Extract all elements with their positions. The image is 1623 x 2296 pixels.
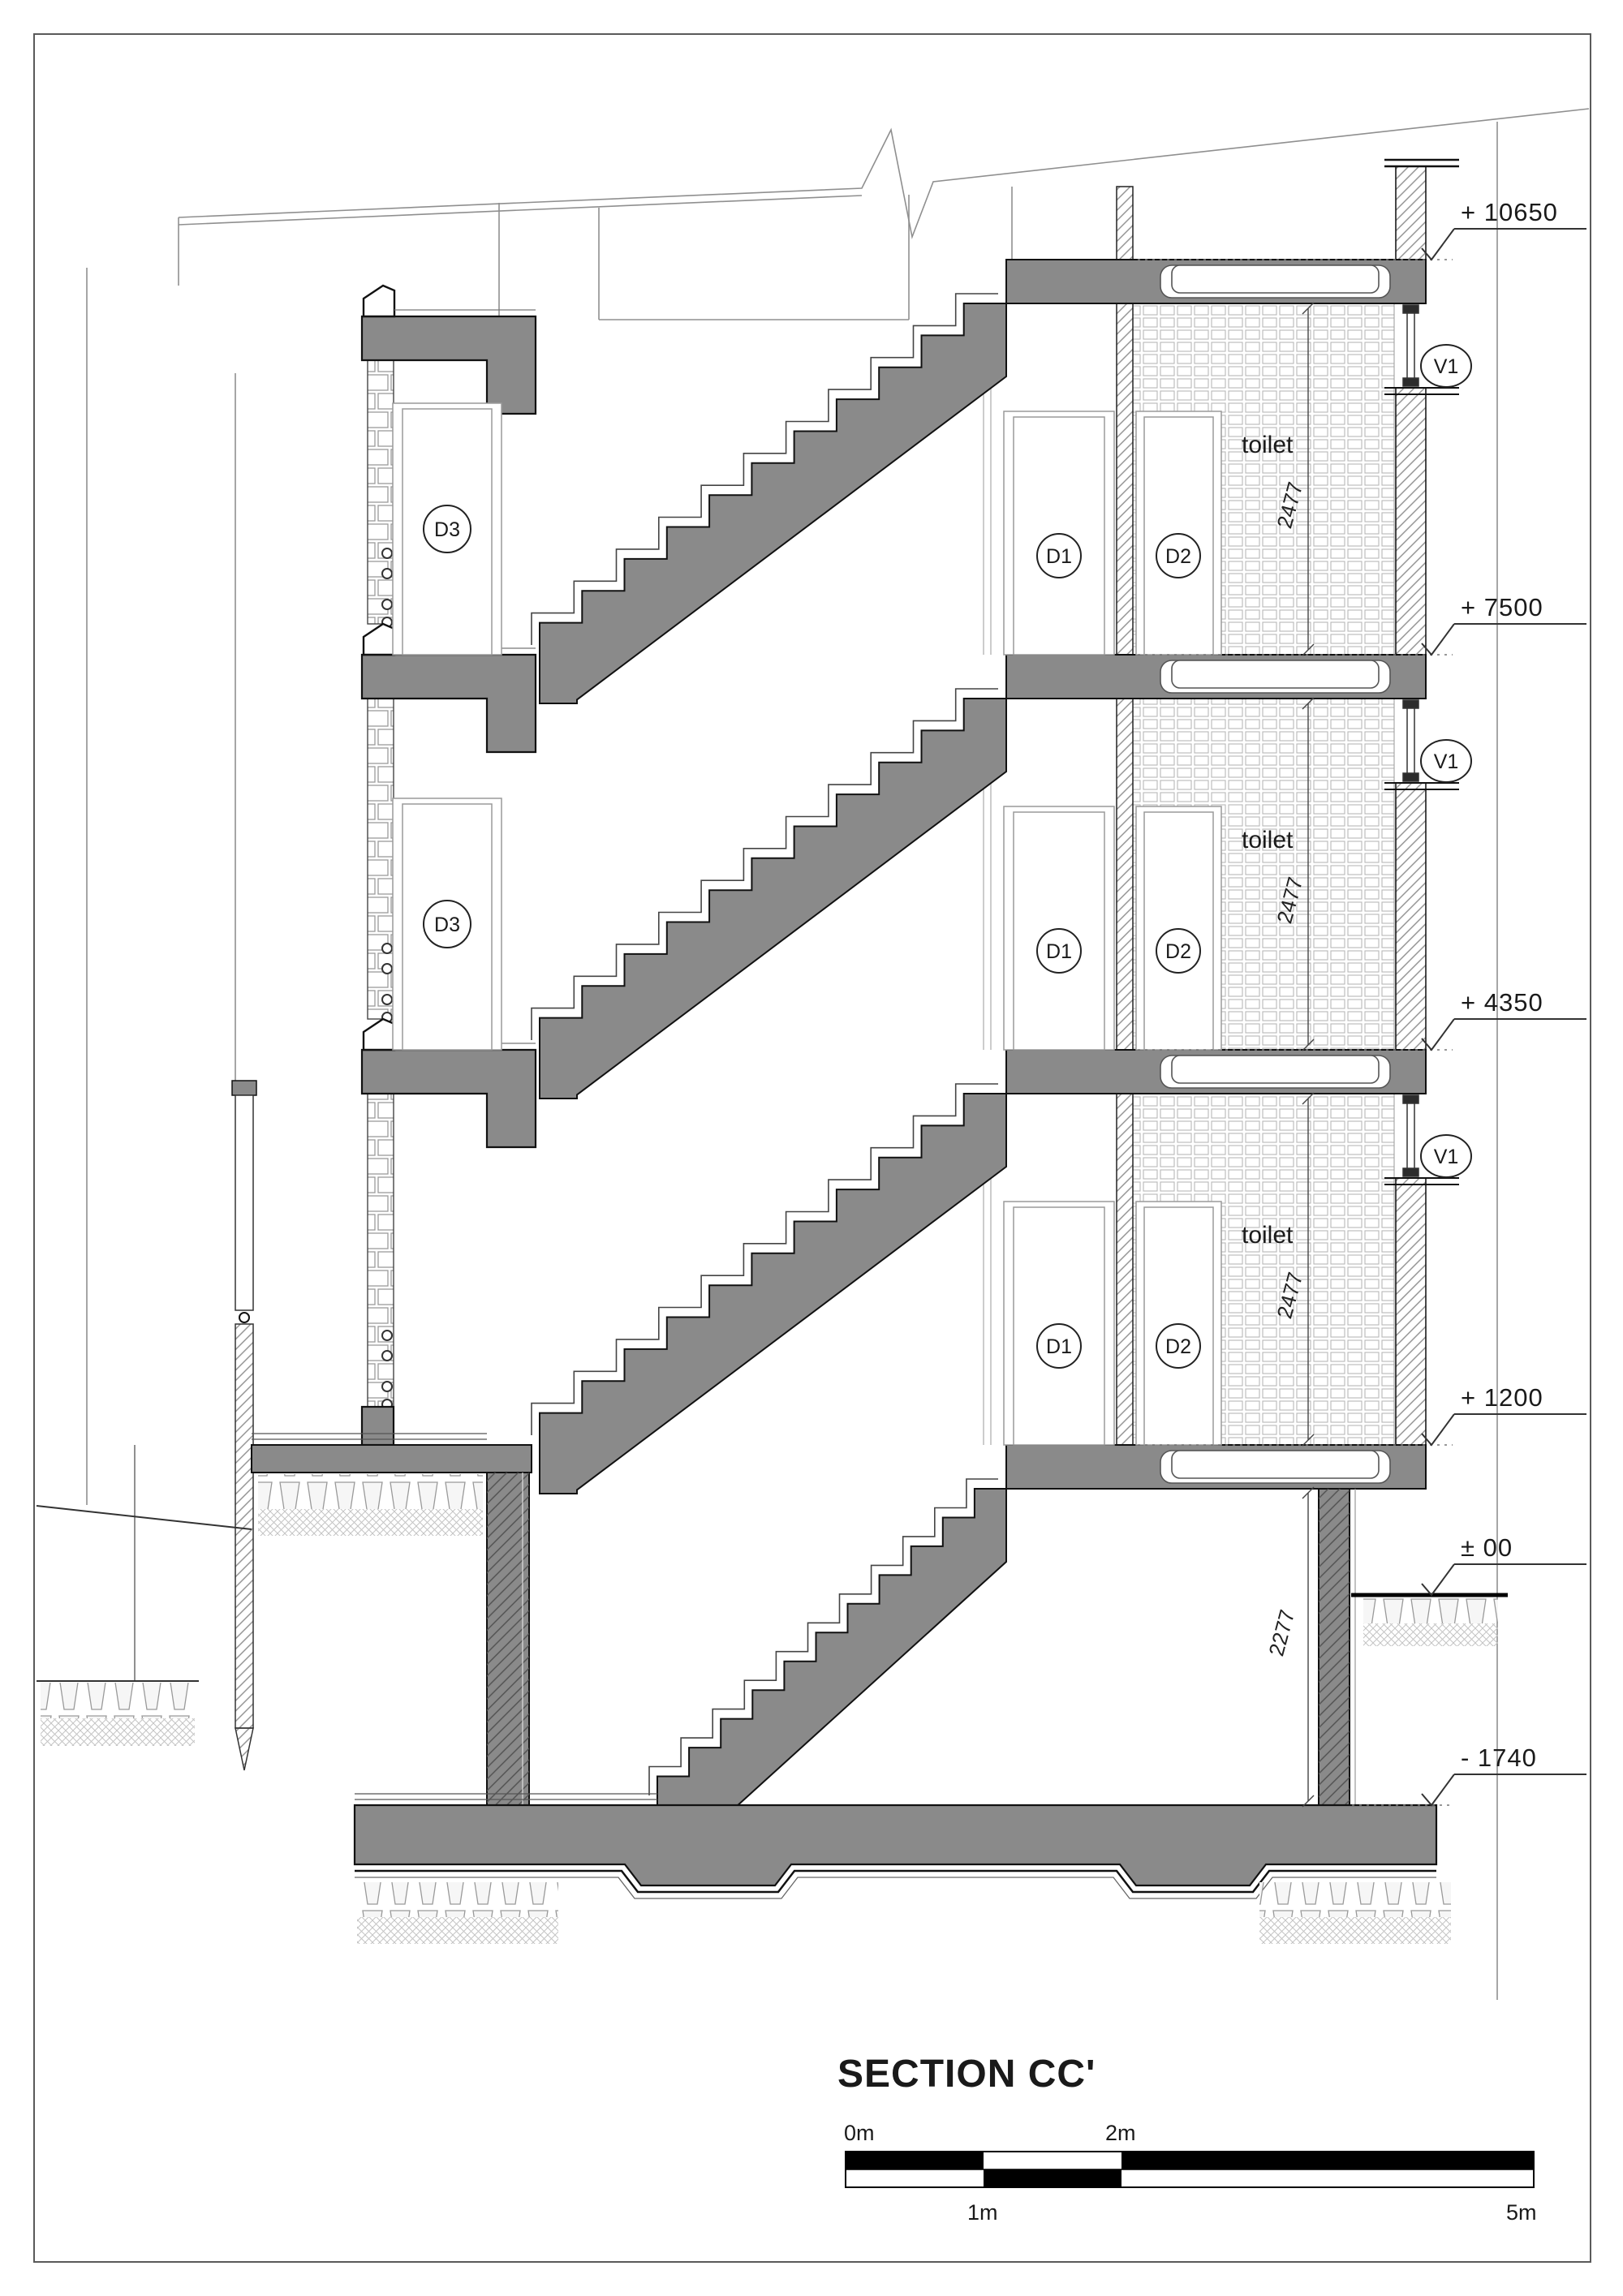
svg-text:D1: D1 <box>1046 545 1072 568</box>
svg-text:D2: D2 <box>1165 545 1191 568</box>
vent-tag-labels: V1 V1 V1 <box>1434 355 1459 1168</box>
level-4350: + 4350 <box>1461 988 1543 1017</box>
scale-bar: 0m 2m 1m 5m <box>844 2121 1537 2225</box>
stair-flights <box>532 294 1006 1854</box>
stair-flight <box>540 303 1006 703</box>
vent-window-2 <box>1403 700 1419 781</box>
svg-text:V1: V1 <box>1434 355 1459 378</box>
scale-2m: 2m <box>1105 2121 1136 2145</box>
drawing-title: SECTION CC' <box>837 2053 1096 2096</box>
svg-text:D2: D2 <box>1165 1335 1191 1358</box>
vent-window-3 <box>1403 1095 1419 1176</box>
stair-flight <box>657 1489 1006 1854</box>
svg-text:toilet: toilet <box>1242 432 1294 458</box>
right-exterior-wall <box>1384 160 1459 1445</box>
svg-text:toilet: toilet <box>1242 827 1294 853</box>
svg-text:2277: 2277 <box>1264 1607 1299 1659</box>
partition-lines <box>984 303 991 1445</box>
level-labels: + 10650 + 7500 + 4350 + 1200 ± 00 - 1740 <box>1461 198 1558 1772</box>
scale-0m: 0m <box>844 2121 875 2145</box>
lower-left-structure <box>37 1081 532 1805</box>
brick-wall <box>368 360 394 1407</box>
section-drawing: + 10650 + 7500 + 4350 + 1200 ± 00 - 1740… <box>0 0 1623 2296</box>
svg-text:V1: V1 <box>1434 750 1459 773</box>
level-7500: + 7500 <box>1461 593 1543 621</box>
level-0: ± 00 <box>1461 1533 1513 1562</box>
parapet-cap <box>1384 160 1459 166</box>
svg-text:D3: D3 <box>434 914 460 936</box>
hardcore-left-entry <box>258 1474 483 1509</box>
stair-flight <box>540 1094 1006 1494</box>
stairwell-wall <box>1117 187 1133 1445</box>
level-10650: + 10650 <box>1461 198 1558 226</box>
level-minus-1740: - 1740 <box>1461 1743 1537 1772</box>
drawing-sheet: + 10650 + 7500 + 4350 + 1200 ± 00 - 1740… <box>0 0 1623 2296</box>
stair-flight <box>540 699 1006 1099</box>
svg-text:toilet: toilet <box>1242 1222 1294 1249</box>
hardcore-right <box>1259 1882 1451 1917</box>
svg-text:D1: D1 <box>1046 1335 1072 1358</box>
hardcore-left <box>357 1882 558 1917</box>
svg-text:V1: V1 <box>1434 1146 1459 1168</box>
svg-text:D2: D2 <box>1165 940 1191 963</box>
level-1200: + 1200 <box>1461 1383 1543 1412</box>
svg-text:D1: D1 <box>1046 940 1072 963</box>
ground-gravel-right <box>1363 1597 1498 1623</box>
foundation <box>355 1794 1451 1944</box>
svg-text:D3: D3 <box>434 518 460 541</box>
vent-window-1 <box>1403 305 1419 386</box>
scale-5m: 5m <box>1506 2200 1537 2225</box>
scale-1m: 1m <box>967 2200 998 2225</box>
